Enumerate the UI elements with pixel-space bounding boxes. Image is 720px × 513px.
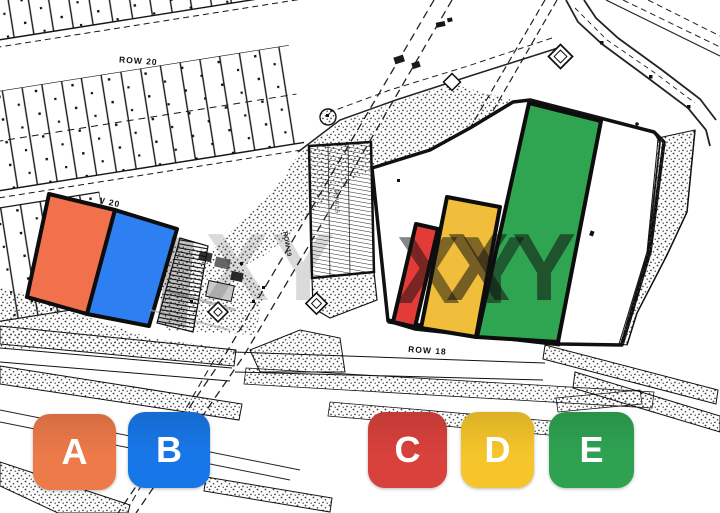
plot-button-e[interactable]: E — [549, 412, 634, 488]
button-label: E — [579, 429, 603, 471]
svg-text:XY: XY — [205, 214, 337, 321]
path-tick-marks — [600, 41, 691, 109]
small-top-structures — [393, 55, 420, 69]
plot-button-a[interactable]: A — [33, 414, 116, 490]
plot-button-c[interactable]: C — [368, 412, 447, 488]
site-plan-screen: ROW 20 ROW 20 ROW 19 ROW 19 — [0, 0, 720, 513]
svg-text:XY: XY — [446, 214, 578, 321]
button-label: B — [156, 429, 182, 471]
button-label: D — [485, 429, 511, 471]
survey-circle — [320, 109, 336, 125]
dimension-smudge — [435, 17, 453, 27]
button-label: A — [62, 431, 88, 473]
button-label: C — [395, 429, 421, 471]
plot-button-b[interactable]: B — [128, 412, 210, 488]
plot-button-d[interactable]: D — [461, 412, 534, 488]
row-20-top-label: ROW 20 — [119, 54, 158, 67]
row-18-label: ROW 18 — [408, 344, 447, 357]
